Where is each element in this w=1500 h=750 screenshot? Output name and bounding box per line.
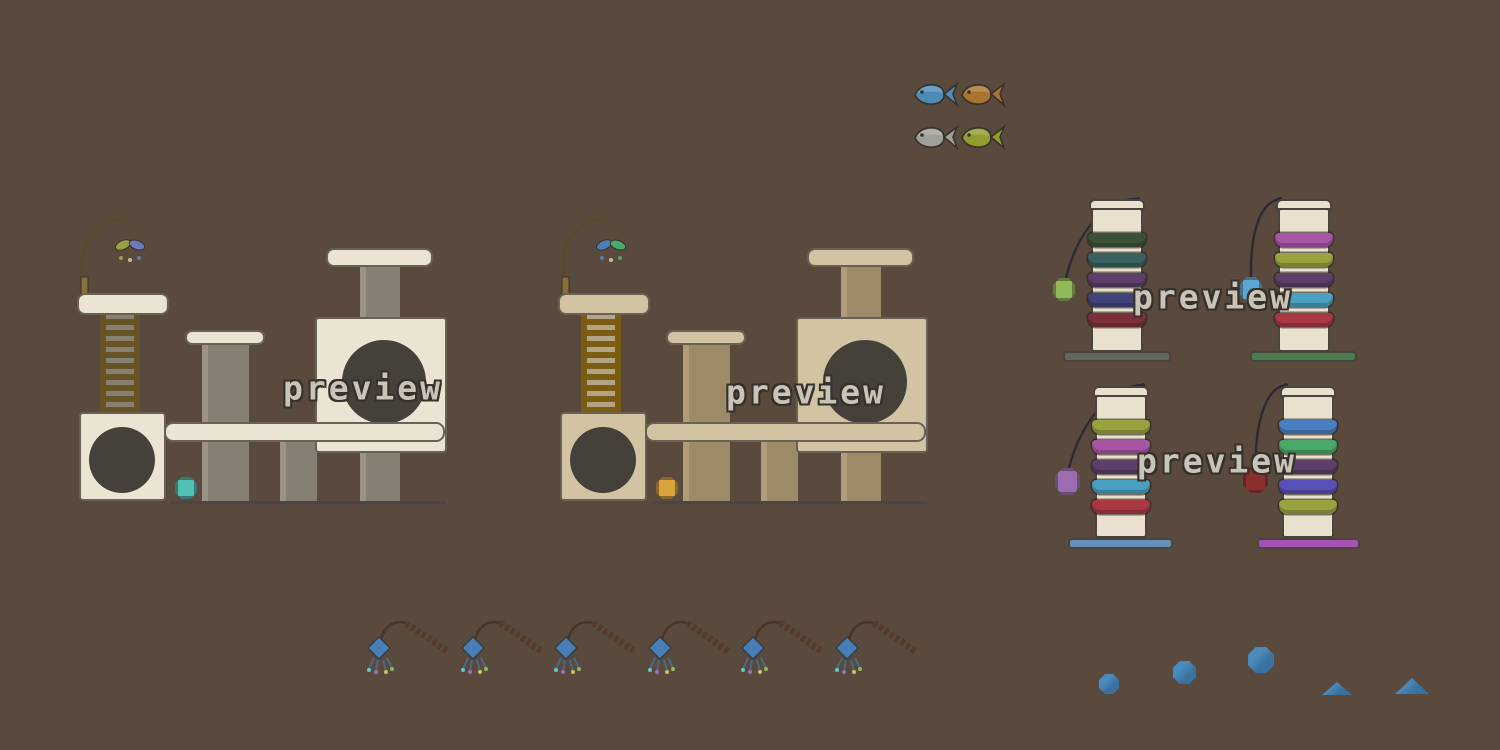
cat-hole [89,427,155,493]
fish-icon [960,81,1006,108]
tree-post [360,453,400,501]
toy-ball-small [1099,674,1119,694]
post-stripe [1088,233,1146,247]
cat-tree-cream [75,200,450,505]
post-stripe [1279,420,1337,434]
fish-sprite-orange [960,81,1006,108]
post-ball [1053,278,1075,301]
teaser-wand-icon [734,612,826,674]
post-base [1257,538,1360,549]
watermark-preview: preview [1133,278,1293,317]
fish-sprite-green [960,124,1006,151]
teaser-wand-sprite [828,612,920,674]
post-stripe [1092,420,1150,434]
tree-ladder-post [581,314,621,414]
post-base [1250,351,1357,362]
watermark-preview: preview [1137,442,1297,481]
watermark-preview: preview [283,369,443,408]
teaser-wand-sprite [547,612,639,674]
tree-post [841,453,881,501]
floor-shadow [651,501,927,504]
wand-toy-icon [75,205,155,300]
tree-mid-platform [666,330,746,345]
tree-cube-house [560,412,647,501]
fish-icon [960,124,1006,151]
teaser-wand-icon [641,612,733,674]
post-stripe [1092,500,1150,514]
fish-icon [913,124,959,151]
post-base [1068,538,1173,549]
post-stripe [1279,480,1337,494]
tree-mid-platform [185,330,265,345]
cat-hole [570,427,636,493]
tree-cap-platform [807,248,914,267]
tree-top-platform [77,293,169,315]
wand-toy-icon [556,205,636,300]
toy-ball-medium [1173,661,1196,684]
post-stripe [1088,253,1146,267]
tree-ladder-post [100,314,140,414]
tree-post [841,267,881,317]
tree-long-plank [164,422,445,442]
toy-ball-teal [175,477,197,499]
teaser-wand-sprite [454,612,546,674]
tree-cube-house [79,412,166,501]
teaser-wand-icon [360,612,452,674]
tree-post [280,442,317,501]
tree-post [360,267,400,317]
post-base [1063,351,1171,362]
teaser-wand-icon [547,612,639,674]
toy-ball-large [1248,647,1274,673]
sprite-sheet-stage: preview preview preview preview [0,0,1500,750]
teaser-wand-sprite [734,612,826,674]
toy-mound-small [1322,682,1352,695]
fish-icon [913,81,959,108]
post-stripe [1279,500,1337,514]
watermark-preview: preview [726,373,886,412]
tree-long-plank [645,422,926,442]
teaser-wand-sprite [641,612,733,674]
tree-cap-platform [326,248,433,267]
post-stripe [1275,253,1333,267]
floor-shadow [170,501,446,504]
teaser-wand-icon [454,612,546,674]
teaser-wand-icon [828,612,920,674]
tree-top-platform [558,293,650,315]
teaser-wand-sprite [360,612,452,674]
toy-mound-large [1395,678,1429,694]
cat-tree-tan [556,200,931,505]
fish-sprite-blue [913,81,959,108]
post-stripe [1092,480,1150,494]
toy-ball-orange [656,477,678,499]
tree-post [761,442,798,501]
fish-sprite-silver [913,124,959,151]
post-stripe [1275,233,1333,247]
